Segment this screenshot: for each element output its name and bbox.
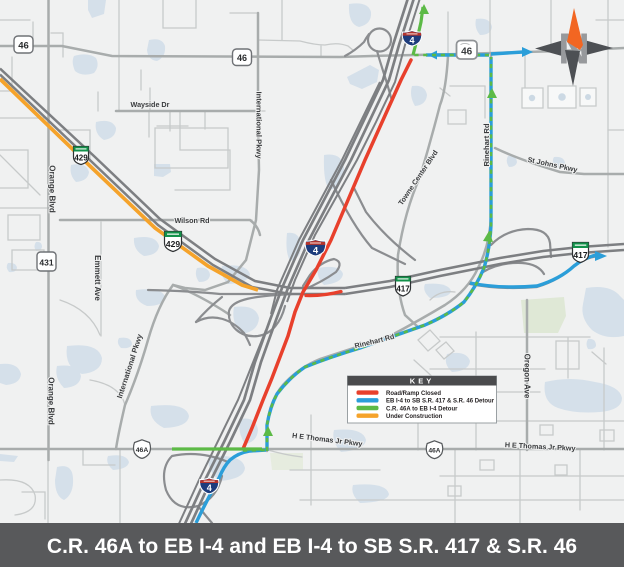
svg-text:Oregon Ave: Oregon Ave [523,354,532,399]
svg-text:Wilson Rd: Wilson Rd [174,216,209,225]
svg-text:431: 431 [39,258,53,268]
svg-text:46A: 46A [429,448,441,455]
svg-text:4: 4 [313,246,319,257]
svg-text:C.R. 46A to EB I-4 Detour: C.R. 46A to EB I-4 Detour [386,406,458,412]
svg-text:Orange Blvd: Orange Blvd [47,377,56,425]
svg-text:Wayside Dr: Wayside Dr [131,100,170,109]
svg-text:46: 46 [18,41,29,52]
svg-text:429: 429 [166,239,180,249]
svg-text:C.R. 46A to EB I-4 and EB I-4: C.R. 46A to EB I-4 and EB I-4 to SB S.R.… [47,535,577,558]
svg-text:Orange Blvd: Orange Blvd [48,165,57,213]
svg-text:Under Construction: Under Construction [386,414,443,420]
svg-text:Road/Ramp Closed: Road/Ramp Closed [386,391,441,397]
svg-text:KEY: KEY [410,377,434,386]
svg-text:417: 417 [396,285,410,294]
svg-text:46A: 46A [136,447,149,454]
svg-text:EB I-4 to SB S.R. 417 & S.R. 4: EB I-4 to SB S.R. 417 & S.R. 46 Detour [386,399,495,405]
svg-text:Rinehart Rd: Rinehart Rd [482,123,491,166]
svg-text:46: 46 [461,47,473,58]
svg-text:46: 46 [237,53,247,63]
svg-text:429: 429 [74,154,88,163]
svg-text:4: 4 [409,36,414,46]
svg-text:Emmett Ave: Emmett Ave [93,255,102,301]
svg-text:4: 4 [207,483,212,493]
svg-text:417: 417 [573,250,587,260]
svg-text:International Pkwy: International Pkwy [255,91,264,159]
